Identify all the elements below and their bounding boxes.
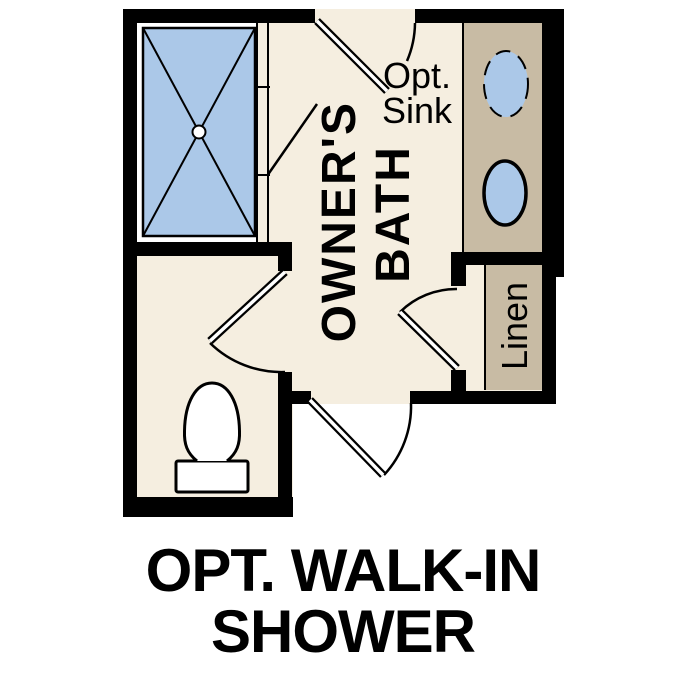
wall-top-right — [415, 9, 564, 23]
wall-linen-right — [542, 265, 556, 404]
toilet-tank — [176, 461, 248, 492]
wall-toilet-right-lower — [278, 372, 292, 517]
wall-right-exterior — [542, 9, 564, 277]
opt-sink-label-line2: Sink — [382, 90, 453, 131]
wall-under-shower — [123, 242, 292, 256]
wall-linen-door-top-stub — [451, 252, 466, 286]
toilet-bowl — [184, 383, 239, 461]
floor-plan-figure: OWNER'S BATH Opt. Sink Linen OPT. WALK-I… — [0, 0, 687, 687]
caption-line2: SHOWER — [211, 598, 476, 665]
wall-bottom-toilet-room — [123, 497, 293, 517]
wall-toilet-right-upper-stub — [278, 242, 292, 271]
vanity-counter — [463, 23, 542, 252]
exterior-mask — [556, 277, 566, 404]
wall-bath-bottom-right — [410, 391, 556, 404]
entry-door-swing-arc — [384, 403, 411, 475]
room-label-line2: BATH — [367, 145, 420, 283]
wall-linen-door-bottom-stub — [451, 370, 466, 393]
wall-top-left — [123, 9, 315, 23]
vanity-sink — [484, 161, 526, 225]
room-label-line1: OWNER'S — [313, 101, 366, 342]
linen-label: Linen — [494, 282, 535, 370]
optional-vanity-sink — [484, 51, 528, 117]
shower-drain-icon — [193, 126, 206, 139]
wall-left — [123, 9, 137, 517]
caption-line1: OPT. WALK-IN — [146, 537, 541, 604]
floor-plan-canvas: OWNER'S BATH Opt. Sink Linen OPT. WALK-I… — [0, 0, 687, 687]
entry-door-leaf-core — [310, 400, 383, 475]
